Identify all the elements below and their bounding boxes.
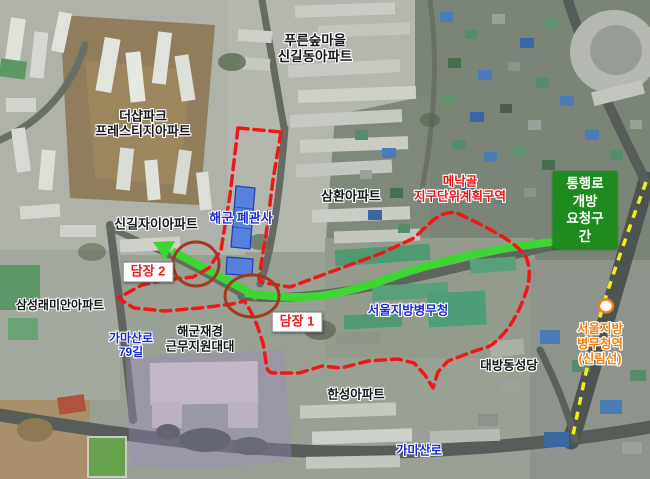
boundary-main-loop <box>245 132 529 388</box>
station-marker <box>599 300 613 313</box>
passage-request-arrows <box>153 231 580 297</box>
satellite-map-image: 푸른숲마을 신길동아파트 더샵파크 프레스티지아파트 신길자이아파트 삼환아파트… <box>0 0 650 479</box>
passage-open-request-box: 통행로 개방 요청구간 <box>553 171 618 249</box>
fence-1-badge: 담장 1 <box>272 312 323 333</box>
boundary-strip-top <box>238 128 281 132</box>
fence-2-badge: 담장 2 <box>123 262 174 283</box>
